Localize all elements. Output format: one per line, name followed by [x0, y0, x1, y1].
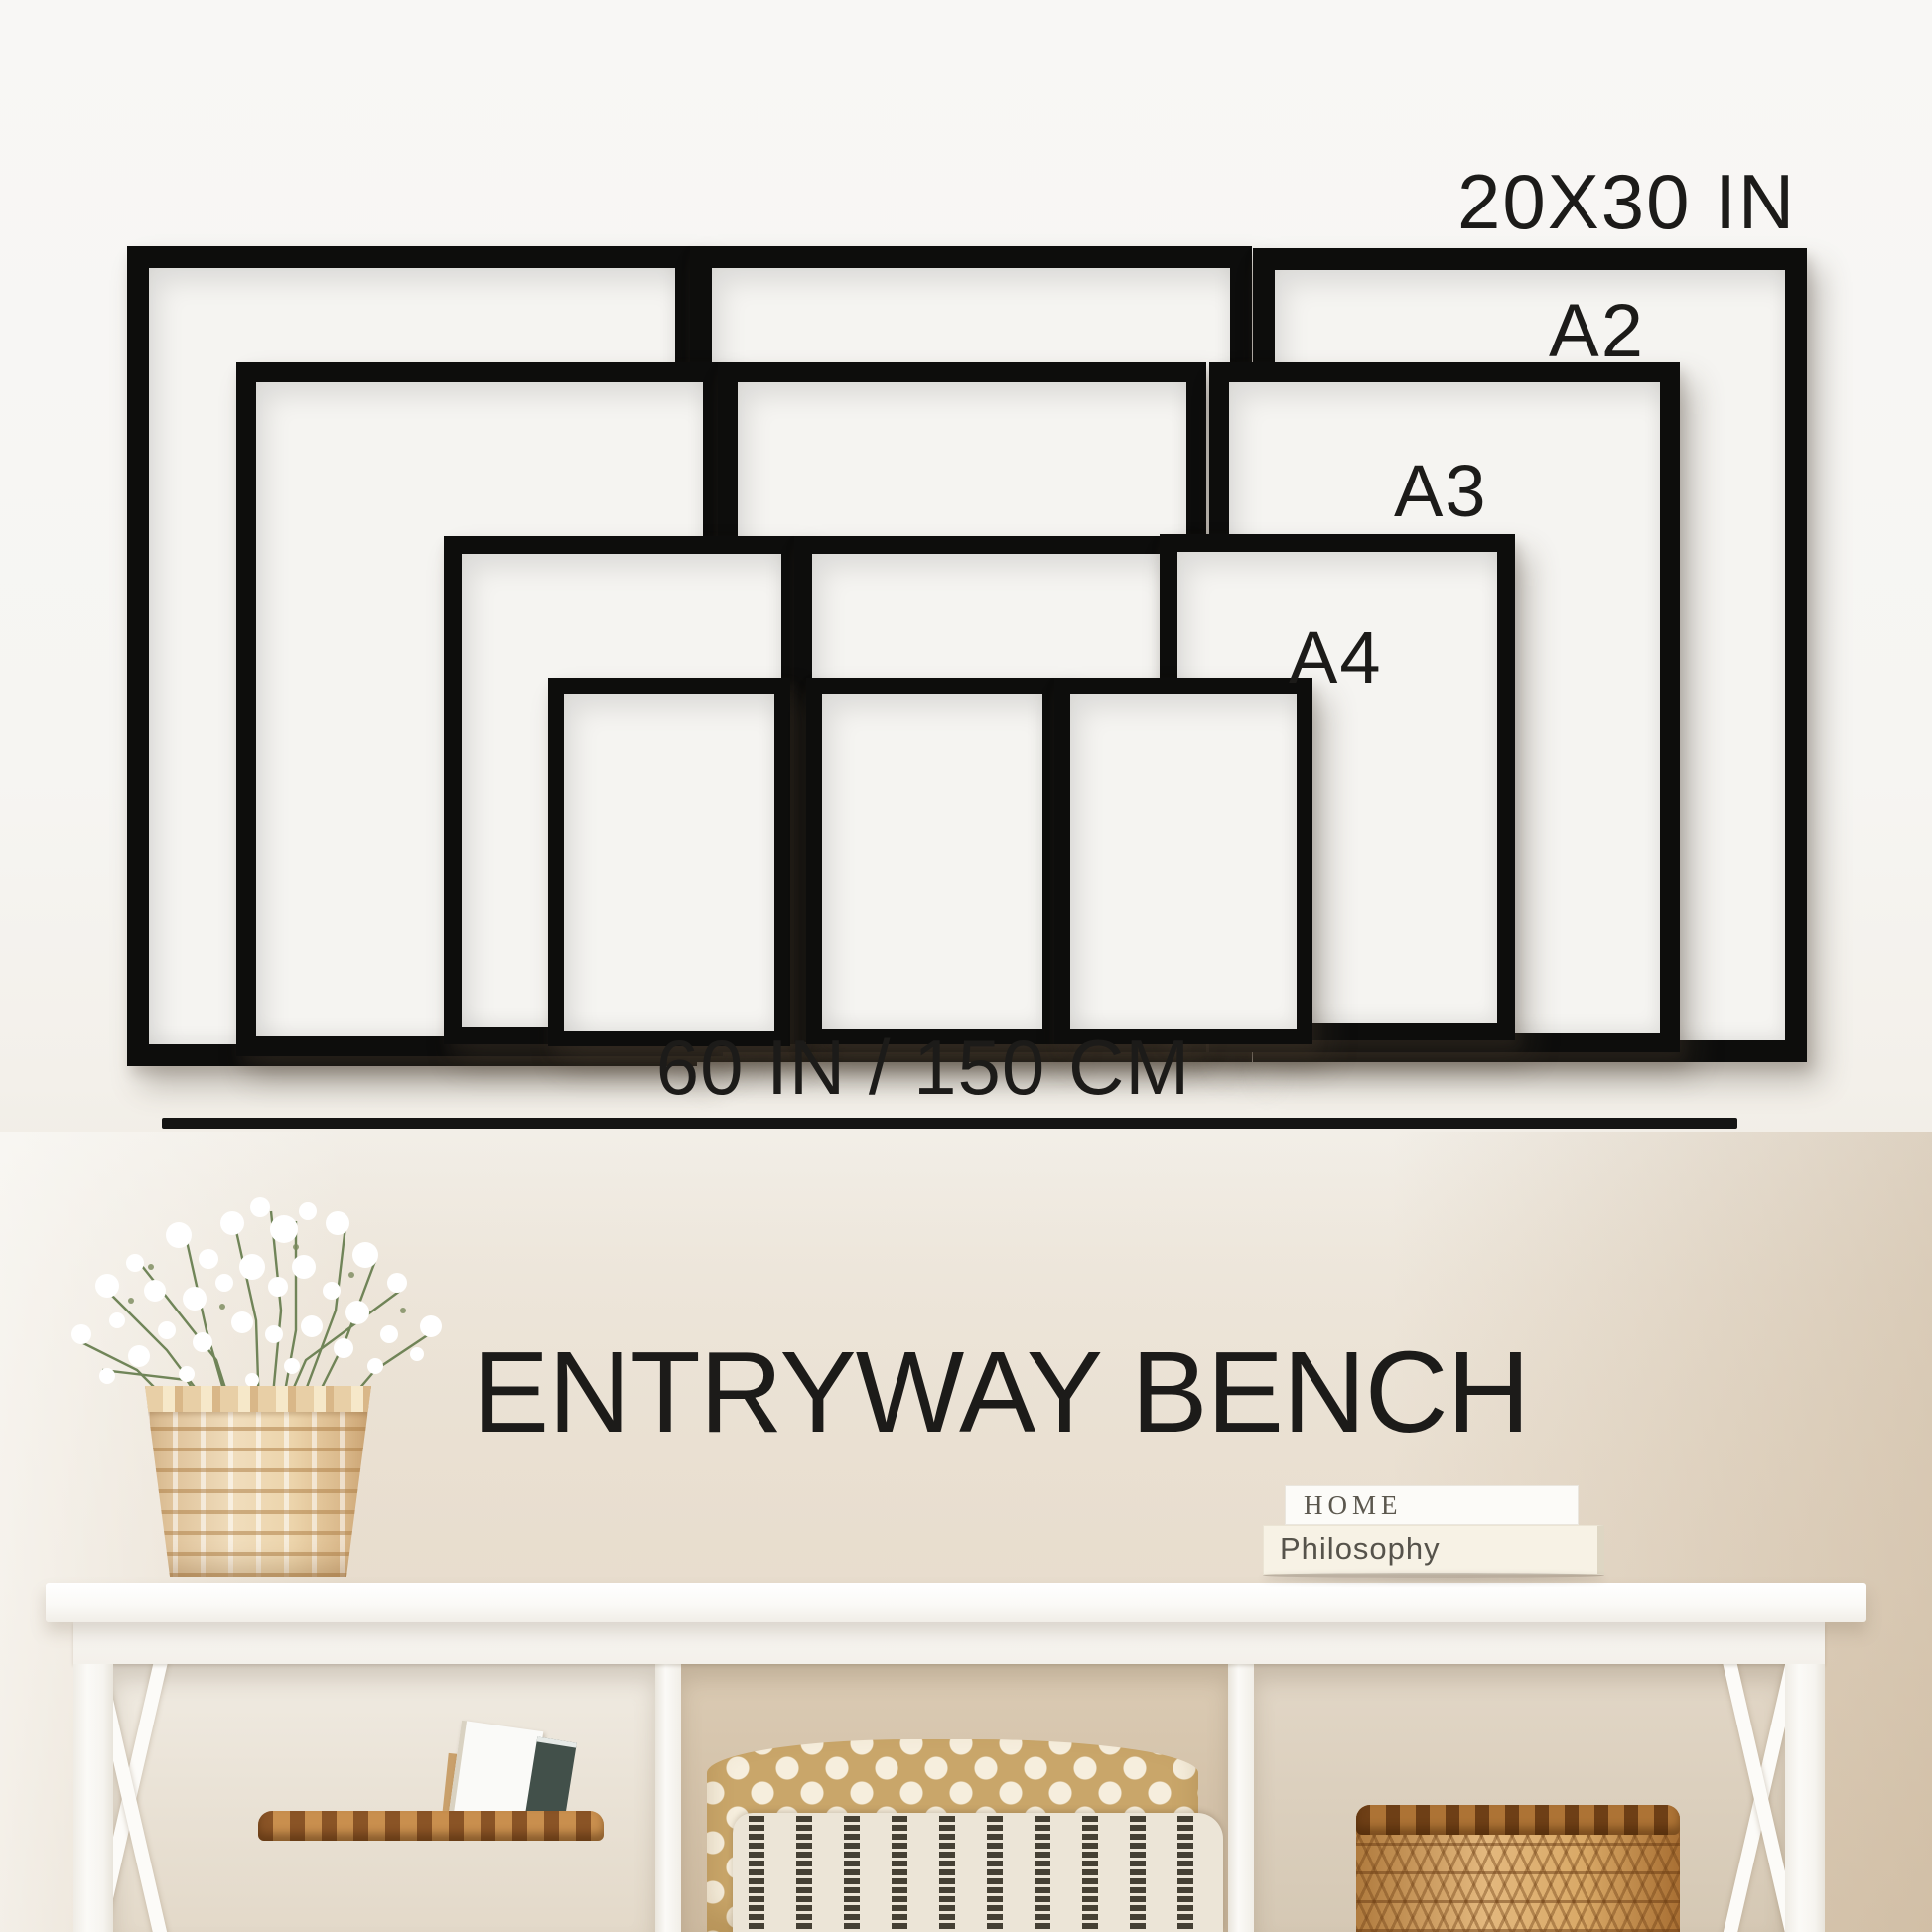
storage-basket-right	[1356, 1805, 1680, 1932]
size-label-20x30: 20X30 IN	[1457, 163, 1796, 240]
size-label-a2: A2	[1549, 294, 1645, 369]
book-shadow	[1263, 1573, 1604, 1578]
cubby-divider-right	[1228, 1664, 1254, 1932]
basket-rim	[258, 1811, 604, 1841]
plant-basket	[145, 1386, 371, 1577]
basket-rim	[1356, 1805, 1680, 1835]
storage-basket-left	[258, 1811, 604, 1932]
book-spine-home: HOME	[1285, 1485, 1579, 1525]
frame-a4-left	[548, 678, 790, 1046]
bench-tabletop	[46, 1583, 1866, 1622]
striped-pillow	[733, 1813, 1223, 1932]
page-title: ENTRYWAY BENCH	[370, 1334, 1631, 1449]
product-mockup: 20X30 IN A2 A3 A4 60 IN / 150 CM ENTRYWA…	[0, 0, 1932, 1932]
frame-a4-right	[1054, 678, 1312, 1044]
bench-leg-right	[1785, 1664, 1825, 1932]
width-measure-line	[162, 1118, 1737, 1129]
bench-apron	[73, 1622, 1825, 1664]
book-spine-philosophy: Philosophy	[1263, 1525, 1604, 1575]
frame-a4-middle	[806, 678, 1058, 1044]
width-caption: 60 IN / 150 CM	[536, 1029, 1311, 1106]
cubby-divider-left	[655, 1664, 681, 1932]
bench-leg-left	[73, 1664, 113, 1932]
size-label-a3: A3	[1394, 455, 1488, 528]
size-label-a4: A4	[1289, 621, 1383, 695]
